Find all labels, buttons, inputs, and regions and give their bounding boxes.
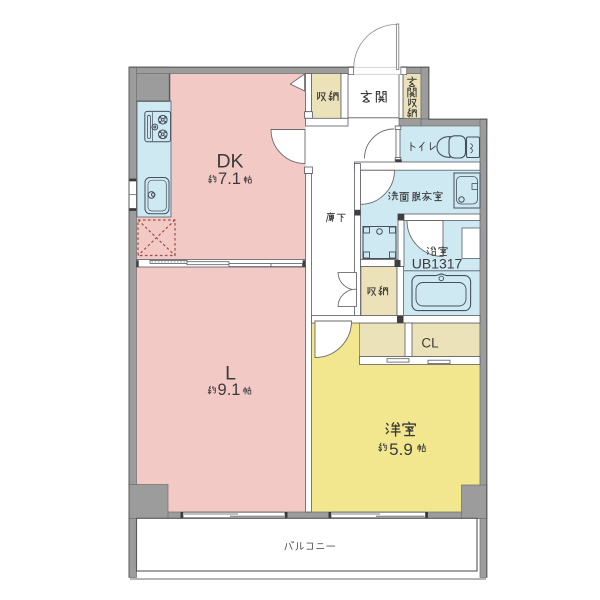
svg-text:CL: CL xyxy=(421,336,439,351)
svg-text:7.1: 7.1 xyxy=(218,170,241,188)
svg-text:5.9: 5.9 xyxy=(389,440,413,459)
svg-text:9.1: 9.1 xyxy=(218,381,241,399)
svg-text:UB1317: UB1317 xyxy=(412,256,463,272)
